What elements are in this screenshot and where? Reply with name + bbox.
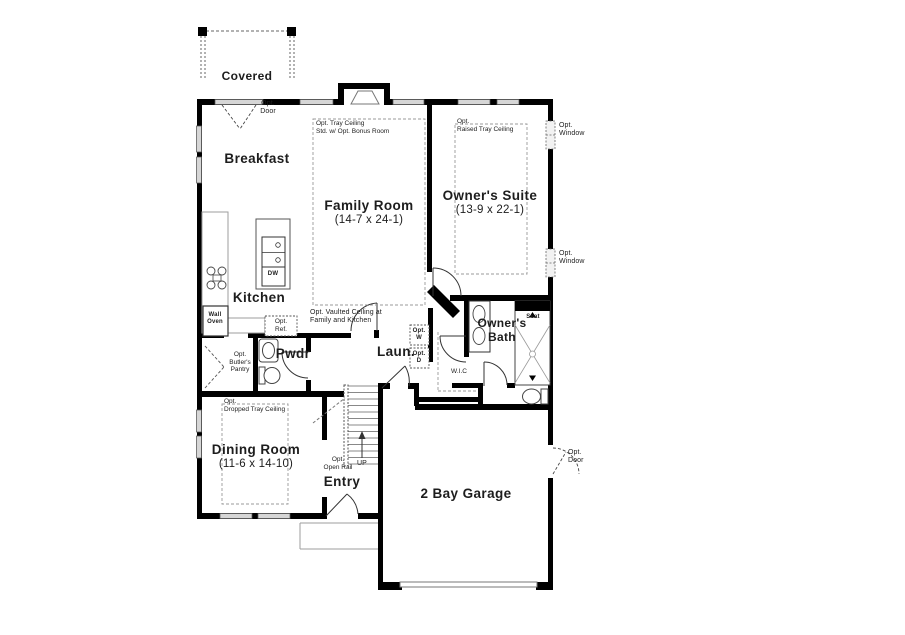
dining-room-label: Dining Room (11-6 x 14-10) [212,442,300,470]
garage-label: 2 Bay Garage [420,486,511,502]
opt-washer-label: Opt. W [413,328,426,341]
open-rail-pointer [313,398,345,423]
opt-door-garage-label: Opt. Door [568,449,584,466]
cooktop-burner [218,281,226,289]
up-arrow-head [359,431,366,439]
laundry-label: Laun. [377,344,415,360]
garage-door [400,582,537,587]
pwdr-label: Pwdr [276,346,311,362]
opt-door-breakfast-label: Opt. Door [260,100,276,117]
floorplan-geometry [0,0,905,635]
cooktop-burner [207,267,215,275]
pantry-doors [205,346,224,388]
floor-plan: Covered Breakfast Family Room (14-7 x 24… [0,0,905,635]
shower-seat-label: Seat [526,314,539,321]
owners-suite-label: Owner's Suite (13-9 x 22-1) [443,188,538,216]
covered-porch: Covered [197,27,297,80]
open-rail-label: Opt. Open Rail [324,456,353,471]
wic-label: W.I.C [451,368,467,376]
pwdr-toilet [264,368,280,384]
owners-bath-label: Owner's Bath [478,317,527,345]
butlers-pantry-label: Opt. Butler's Pantry [229,351,250,374]
cooktop-grid [213,275,221,281]
shower-wall [515,301,550,311]
breakfast-label: Breakfast [224,151,289,167]
owners-suite-note: Opt. Raised Tray Ceiling [457,118,513,133]
stoop [300,523,378,549]
opt-ref-label: Opt. Ref. [275,318,287,333]
opt-window-lower-label: Opt. Window [559,250,585,267]
fireplace [338,83,390,105]
dining-room-note: Opt. Dropped Tray Ceiling [224,398,285,413]
dishwasher-label: DW [268,271,278,278]
covered-porch-label: Covered [222,69,273,80]
shower-drain [530,351,536,357]
open-rail [344,385,348,466]
opt-window-upper-label: Opt. Window [559,122,585,139]
entry-label: Entry [324,474,361,490]
vaulted-ceiling-note: Opt. Vaulted Ceiling at Family and Kitch… [310,309,382,326]
cooktop-burner [207,281,215,289]
counter [228,318,265,333]
toilet-tank [541,389,548,404]
stairs-up-label: UP [357,460,367,468]
opt-dryer-label: Opt. D [413,351,426,364]
cooktop-burner [218,267,226,275]
wall-oven-label: Wall Oven [207,312,223,325]
family-room-note: Opt. Tray Ceiling Std. w/ Opt. Bonus Roo… [316,120,389,135]
family-room-label: Family Room (14-7 x 24-1) [324,198,413,226]
toilet [523,389,541,404]
kitchen-label: Kitchen [233,290,285,306]
